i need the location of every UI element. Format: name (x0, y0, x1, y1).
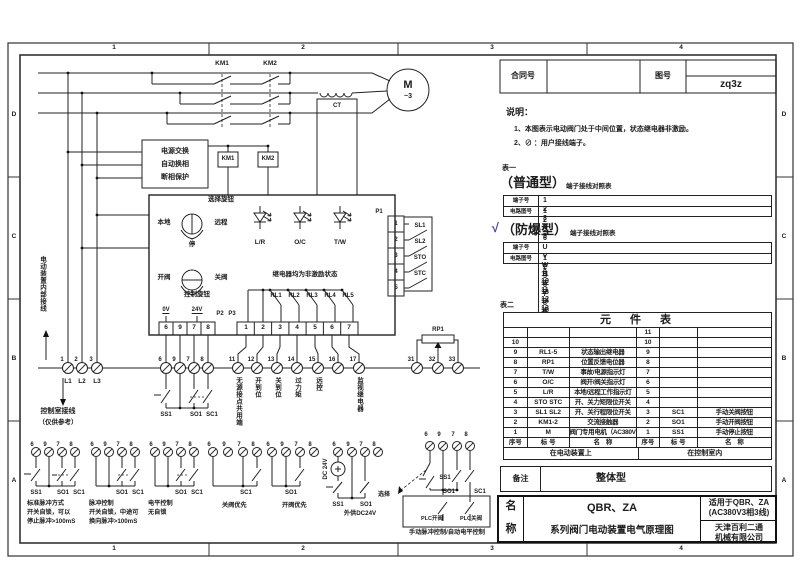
component-row: 7 T/W 事故/电源指示灯 7 (504, 368, 771, 378)
dc24v-label: DC 24V (323, 447, 329, 491)
room-side-label: 控制室接线 (41, 408, 76, 415)
scheme-terminal-no: 8 (464, 432, 467, 438)
circuit-cell: 8 (538, 299, 551, 308)
zone-bottom-2: 2 (301, 546, 305, 553)
scheme-terminal-no: 8 (129, 442, 132, 448)
check-mark: √ (491, 221, 498, 234)
seq-cell: 3 (637, 408, 660, 417)
scheme-terminal-no: 8 (372, 442, 375, 448)
scheme1-so1: SO1 (57, 490, 69, 496)
terminal-desc-14: 过力矩 (293, 377, 300, 398)
tag-cell (660, 358, 698, 367)
component-table: 元 件 表 11 10 10 9 RL1-5 状态输出继电器 9 8 RP1 位… (503, 312, 772, 460)
led-tw-label: T/W (334, 240, 346, 247)
notes-heading: 说明： (506, 108, 533, 117)
drawing-sheet: 1 2 3 4 1 2 3 4 D C B A D C B A 合同号 图号 z… (0, 0, 800, 566)
scheme-terminal-no: 8 (188, 442, 191, 448)
scheme-terminal-no: 9 (43, 442, 46, 448)
name-cell (698, 338, 771, 347)
scheme-terminal-no: 6 (424, 432, 427, 438)
terminal-no: 16 (329, 357, 336, 363)
seq-cell: 6 (637, 378, 660, 387)
name-cell: 位置反馈电位器 (570, 358, 638, 367)
seq-cell: 4 (637, 398, 660, 407)
seq-cell: 9 (637, 348, 660, 357)
name-label-bottom: 称 (506, 524, 517, 535)
scheme3-so1: SO1 (175, 490, 187, 496)
scheme-terminal-no: 9 (437, 432, 440, 438)
km1-contact-label: KM1 (215, 61, 229, 68)
model-name: QBR、ZA (587, 503, 637, 514)
scheme7-desc: 手动脉冲控制/自动电平控制 (409, 530, 485, 536)
zone-right-d: D (782, 112, 787, 119)
zero-volt-label: 0V (162, 307, 169, 314)
remarks-value: 整体型 (541, 467, 681, 491)
name-cell: 开、关行程限位开关 (570, 408, 638, 417)
tag-cell (528, 328, 570, 337)
terminal-desc-15: 远控 (314, 377, 321, 391)
p1-cell: 2 (394, 237, 397, 243)
power-box-line3: 断相保护 (161, 174, 189, 181)
p2-cell: 8 (206, 325, 210, 332)
scheme-terminal-no: 6 (207, 442, 210, 448)
seq-cell: 10 (504, 338, 528, 347)
room-note-label: （仅供参考） (39, 420, 78, 427)
component-row: 8 RP1 位置反馈电位器 8 (504, 358, 771, 368)
rp1-label: RP1 (432, 327, 444, 333)
zone-left-a: A (12, 478, 17, 485)
name-cell (570, 328, 638, 337)
tag-cell: SO1 (660, 418, 698, 427)
terminal-cell: 1 (538, 196, 551, 205)
scheme2-desc: 换向脉冲>100mS (89, 519, 137, 525)
scheme-terminal-no: 9 (162, 442, 165, 448)
rl4-label: RL4 (324, 293, 335, 299)
name-cell: 状态输出继电器 (570, 348, 638, 357)
contract-no-label: 合同号 (511, 72, 535, 80)
zone-right-c: C (782, 234, 787, 241)
component-row: 11 (504, 328, 771, 338)
seq-cell: 11 (637, 328, 660, 337)
p3-label: P3 (228, 311, 235, 317)
zone-top-2: 2 (301, 45, 305, 52)
explosion-type-suffix: 端子接线对照表 (570, 231, 616, 238)
name-cell: 阀门专用电机（AC380V） (570, 428, 638, 437)
component-footer: 在电动装置上 在控制室内 (504, 448, 771, 459)
name-cell: 手动关阀按钮 (698, 408, 771, 417)
zone-bottom-4: 4 (679, 546, 683, 553)
tag-cell (660, 338, 698, 347)
seq-cell: 1 (504, 428, 528, 437)
scope-line2: (AC380V3相3线) (709, 509, 769, 517)
seq-cell: 2 (504, 418, 528, 427)
p2-cell: 6 (164, 325, 168, 332)
tag-cell (528, 338, 570, 347)
plc-close-label: PLC关阀 (460, 517, 482, 523)
name-cell: 手动停止按钮 (698, 428, 771, 437)
power-box-line2: 自动换相 (161, 161, 189, 168)
p3-cell: 2 (261, 325, 265, 332)
tag-cell: L/R (528, 388, 570, 397)
seq-cell: 9 (504, 348, 528, 357)
rl1-label: RL1 (270, 293, 281, 299)
arrowheads (43, 330, 442, 494)
scope-line1: 适用于QBR、ZA (709, 499, 769, 507)
in-control-room-label: 在控制室内 (638, 448, 772, 459)
name-cell (698, 378, 771, 387)
scheme-terminal-no: 7 (237, 442, 240, 448)
terminal-cell: U (538, 243, 551, 252)
scheme-terminal-no: 8 (308, 442, 311, 448)
terminal-desc-12: 开到位 (253, 377, 260, 398)
drawing-no-label: 图号 (655, 72, 671, 80)
tag-cell (660, 378, 698, 387)
km2-contact-label: KM2 (263, 61, 277, 68)
tag-cell: SC1 (660, 408, 698, 417)
name-cell (698, 348, 771, 357)
scheme3-desc: 无自锁 (148, 510, 167, 516)
scheme2-desc: 脉冲控制 (89, 501, 114, 507)
p3-cell: 3 (278, 325, 282, 332)
scheme-terminal-no: 9 (103, 442, 106, 448)
zone-right-b: B (782, 356, 787, 363)
tag-cell (660, 328, 698, 337)
scheme-terminal-no: 6 (149, 442, 152, 448)
tag-cell (660, 368, 698, 377)
led-oc-symbol (294, 206, 311, 229)
control-knob-label: 控制旋钮 (184, 292, 210, 299)
scheme-terminal-no: 8 (69, 442, 72, 448)
scheme6-ss1: SS1 (332, 502, 343, 508)
seq-cell: 6 (504, 378, 528, 387)
company-line1: 天津百利二通 (715, 524, 763, 532)
terminal-no: 7 (186, 357, 189, 363)
tag-cell (660, 398, 698, 407)
terminal-no: 2 (74, 357, 77, 363)
seq-cell: 4 (504, 398, 528, 407)
note-2: 2、⊘ ：用户接线端子。 (514, 140, 590, 147)
power-box-line1: 电源交换 (161, 148, 189, 155)
explosion-type-title: （防爆型） (502, 223, 567, 236)
table-row: 端子号 123456789101112131415161718 (504, 196, 771, 206)
component-row: 6 O/C 阀开/阀关指示灯 6 (504, 378, 771, 388)
phase-l2-label: L2 (78, 379, 86, 386)
zone-left-c: C (12, 234, 17, 241)
component-row: 4 STO STC 开、关力矩限位开关 4 (504, 398, 771, 408)
scheme1-desc: 标准脉冲方式 (27, 501, 64, 507)
24v-label: 24V (192, 307, 203, 314)
component-row: 2 KM1-2 交流接触器 2 SO1 手动开阀按钮 (504, 418, 771, 428)
tag-cell (660, 348, 698, 357)
scheme-terminal-no: 7 (451, 432, 454, 438)
table2-caption: 表二 (500, 302, 514, 309)
led-lr-symbol (254, 206, 271, 229)
scheme1-sc1: SC1 (73, 490, 85, 496)
scheme-terminal-no: 6 (332, 442, 335, 448)
tag-cell: M (528, 428, 570, 437)
terminal-desc-17: 监视继电器 (355, 377, 362, 412)
normal-type-suffix: 端子接线对照表 (566, 184, 612, 191)
stop-label: 停 (189, 242, 196, 249)
scheme-terminal-no: 7 (56, 442, 59, 448)
sc1-label: SC1 (206, 412, 218, 418)
seq-cell (504, 328, 528, 337)
p1-cell: 4 (394, 269, 397, 275)
phase-l1-label: L1 (64, 379, 72, 386)
terminal-no: 14 (288, 357, 295, 363)
p3-cell: 5 (313, 325, 317, 332)
close-valve-label: 关阀 (215, 275, 228, 282)
p3-cell: 1 (244, 325, 248, 332)
name-cell: 手动开阀按钮 (698, 418, 771, 427)
scheme1-desc: 开关自锁，可以 (27, 510, 70, 516)
relay-contacts (248, 290, 353, 322)
relay-state-note: 继电器均为非激励状态 (273, 272, 338, 279)
name-cell (698, 358, 771, 367)
seq-cell: 5 (504, 388, 528, 397)
terminal-no: 31 (408, 357, 415, 363)
ct-label: CT (333, 103, 341, 109)
scheme4-sc1: SC1 (240, 490, 252, 496)
phase-l3-label: L3 (93, 379, 101, 386)
seq-cell: 5 (637, 388, 660, 397)
component-row: 1 M 阀门专用电机（AC380V） 1 SS1 手动停止按钮 (504, 428, 771, 438)
name-cell (698, 368, 771, 377)
stc-label: STC (414, 271, 426, 277)
terminal-no: 15 (309, 357, 316, 363)
seq-cell: 7 (637, 368, 660, 377)
terminal-no: 13 (268, 357, 275, 363)
name-cell (698, 388, 771, 397)
component-row: 9 RL1-5 状态输出继电器 9 (504, 348, 771, 358)
sl1-label: SL1 (414, 223, 425, 229)
component-row: 5 L/R 本地/远程工作指示灯 5 (504, 388, 771, 398)
seq-cell: 3 (504, 408, 528, 417)
product-title: 系列阀门电动装置电气原理图 (550, 526, 674, 536)
scheme7-so1: SO1 (443, 489, 455, 495)
tag-cell: T/W (528, 368, 570, 377)
circuit-cell: 1 (538, 254, 551, 263)
device-side-label: 电动装置内部接线 (38, 256, 45, 312)
open-valve-label: 开阀 (158, 275, 171, 282)
seq-cell: 7 (504, 368, 528, 377)
seq-cell: 2 (637, 418, 660, 427)
p3-cell: 4 (295, 325, 299, 332)
km2-coil-label: KM2 (262, 156, 275, 162)
name-cell (698, 328, 771, 337)
terminal-no: 9 (172, 357, 175, 363)
terminal-desc-13: 关到位 (273, 377, 280, 398)
component-row: 10 10 (504, 338, 771, 348)
scheme1-desc: 停止脉冲>100mS (27, 519, 75, 525)
p2-cell: 9 (178, 325, 182, 332)
component-row: 3 SL1 SL2 开、关行程限位开关 3 SC1 手动关阀按钮 (504, 408, 771, 418)
on-device-label: 在电动装置上 (504, 448, 638, 459)
terminal-no: 33 (449, 357, 456, 363)
row-label: 电路图号 (504, 207, 538, 216)
component-table-title: 元 件 表 (504, 313, 771, 328)
p3-cell: 6 (330, 325, 334, 332)
circuit-cell: 6 (538, 281, 551, 290)
name-cell (570, 338, 638, 347)
note-1: 1、本图表示电动阀门处于中间位置，状态继电器非激励。 (514, 126, 693, 133)
scheme-terminal-no: 6 (30, 442, 33, 448)
company-line2: 机械有限公司 (715, 534, 763, 542)
circuit-cell: 1 (538, 207, 551, 216)
led-oc-label: O/C (294, 240, 306, 247)
p3-cell: 7 (347, 325, 351, 332)
row-label: 端子号 (504, 196, 538, 206)
remarks-label: 备注 (501, 467, 541, 491)
zone-left-b: B (12, 356, 17, 363)
rl5-label: RL5 (342, 293, 353, 299)
scheme-terminal-no: 9 (280, 442, 283, 448)
p2-cell: 7 (192, 325, 196, 332)
tag-cell: RP1 (528, 358, 570, 367)
scheme3-desc: 电平控制 (148, 501, 173, 507)
scheme-terminal-no: 9 (346, 442, 349, 448)
zone-top-1: 1 (112, 45, 116, 52)
scheme7-ss1: SS1 (439, 475, 450, 481)
rl3-label: RL3 (306, 293, 317, 299)
led-lr-label: L/R (255, 240, 265, 247)
component-header: 序号 标 号 名 称 序号 标 号 名 称 (504, 438, 771, 448)
terminal-no: 11 (229, 357, 235, 363)
p1-label: P1 (375, 209, 382, 215)
plc-open-label: PLC开阀 (421, 517, 443, 523)
table1-caption: 表一 (502, 165, 516, 172)
name-cell (698, 398, 771, 407)
scheme4-desc: 关阀优先 (222, 503, 247, 509)
ss1-label: SS1 (160, 412, 171, 418)
zone-top-3: 3 (490, 45, 494, 52)
circuit-cell: 2 (538, 263, 551, 272)
seq-cell: 10 (637, 338, 660, 347)
terminal-desc-11: 无源接点共用端 (234, 377, 241, 426)
circuit-cell: 3 (538, 272, 551, 281)
scheme-terminal-no: 6 (266, 442, 269, 448)
control-unit (149, 195, 458, 362)
motor-phase-label: ~3 (404, 93, 412, 100)
zone-top-4: 4 (679, 45, 683, 52)
scheme6-so1: SO1 (360, 502, 372, 508)
sl2-label: SL2 (414, 239, 425, 245)
name-cell: 交流接触器 (570, 418, 638, 427)
tag-cell (660, 388, 698, 397)
row-label: 电路图号 (504, 254, 538, 263)
scheme7-select: 选择 (378, 492, 390, 498)
name-cell: 阀开/阀关指示灯 (570, 378, 638, 387)
terminal-no: 8 (200, 357, 203, 363)
scheme5-desc: 开阀优先 (282, 503, 307, 509)
scheme3-sc1: SC1 (191, 490, 203, 496)
tag-cell: O/C (528, 378, 570, 387)
name-label-top: 名 (506, 501, 517, 512)
zone-right-a: A (782, 478, 787, 485)
scheme2-so1: SO1 (116, 490, 128, 496)
scheme2-desc: 开关自锁，中途可 (89, 510, 139, 516)
terminal-no: 1 (60, 357, 63, 363)
name-cell: 本地/远程工作指示灯 (570, 388, 638, 397)
terminal-no: 12 (248, 357, 255, 363)
table-row: 电路图号 123678911121314151617313233 (504, 206, 771, 216)
p1-cell: 1 (394, 221, 397, 227)
sto-label: STO (414, 255, 426, 261)
seq-cell: 8 (504, 358, 528, 367)
km1-coil-label: KM1 (222, 156, 235, 162)
circuit-cell: 7 (538, 290, 551, 299)
scheme5-so1: SO1 (285, 490, 297, 496)
local-label: 本地 (158, 220, 171, 227)
remote-label: 远程 (215, 220, 228, 227)
tag-cell: SL1 SL2 (528, 408, 570, 417)
row-label: 端子号 (504, 243, 538, 253)
drawing-no-value: zq3z (720, 80, 742, 90)
tag-cell: RL1-5 (528, 348, 570, 357)
terminal-no: 32 (429, 357, 436, 363)
scheme-terminal-no: 6 (90, 442, 93, 448)
terminal-table-explosion: 端子号 UVWE1234567891011121314 电路图号 1236789… (503, 242, 772, 264)
rl2-label: RL2 (288, 293, 299, 299)
table-row: 电路图号 123678911121314151617313233 (504, 253, 771, 263)
tag-cell: KM1-2 (528, 418, 570, 427)
tag-cell: SS1 (660, 428, 698, 437)
table-row: 端子号 UVWE1234567891011121314 (504, 243, 771, 253)
terminal-no: 6 (158, 357, 161, 363)
zone-bottom-3: 3 (490, 546, 494, 553)
p2-label: P2 (216, 311, 223, 317)
zone-bottom-1: 1 (112, 546, 116, 553)
remarks-block: 备注 整体型 (500, 466, 772, 492)
p1-cell: 3 (394, 253, 397, 259)
motor-label: M (403, 80, 412, 91)
selector-knob-label: 选择旋钮 (208, 197, 234, 204)
scheme6-desc: 外供DC24V (344, 511, 376, 517)
so1-label: SO1 (190, 412, 202, 418)
rp1-potentiometer (422, 335, 454, 343)
scheme-terminal-no: 7 (359, 442, 362, 448)
terminal-table-normal: 端子号 123456789101112131415161718 电路图号 123… (503, 195, 772, 217)
terminal-no: 17 (350, 357, 357, 363)
normal-type-title: （普通型） (500, 176, 565, 189)
scheme-terminal-no: 7 (294, 442, 297, 448)
name-cell: 开、关力矩限位开关 (570, 398, 638, 407)
seq-cell: 1 (637, 428, 660, 437)
scheme-terminal-no: 8 (251, 442, 254, 448)
scheme1-ss1: SS1 (30, 490, 41, 496)
scheme7-sc1: SC1 (474, 489, 486, 495)
seq-cell: 8 (637, 358, 660, 367)
scheme2-sc1: SC1 (132, 490, 144, 496)
zone-left-d: D (12, 112, 17, 119)
tag-cell: STO STC (528, 398, 570, 407)
terminal-no: 3 (89, 357, 92, 363)
scheme-terminal-no: 9 (222, 442, 225, 448)
p1-cell: 5 (394, 285, 397, 291)
scheme-terminal-no: 7 (116, 442, 119, 448)
scheme-terminal-no: 7 (175, 442, 178, 448)
name-cell: 事故/电源指示灯 (570, 368, 638, 377)
led-tw-symbol (334, 206, 351, 229)
